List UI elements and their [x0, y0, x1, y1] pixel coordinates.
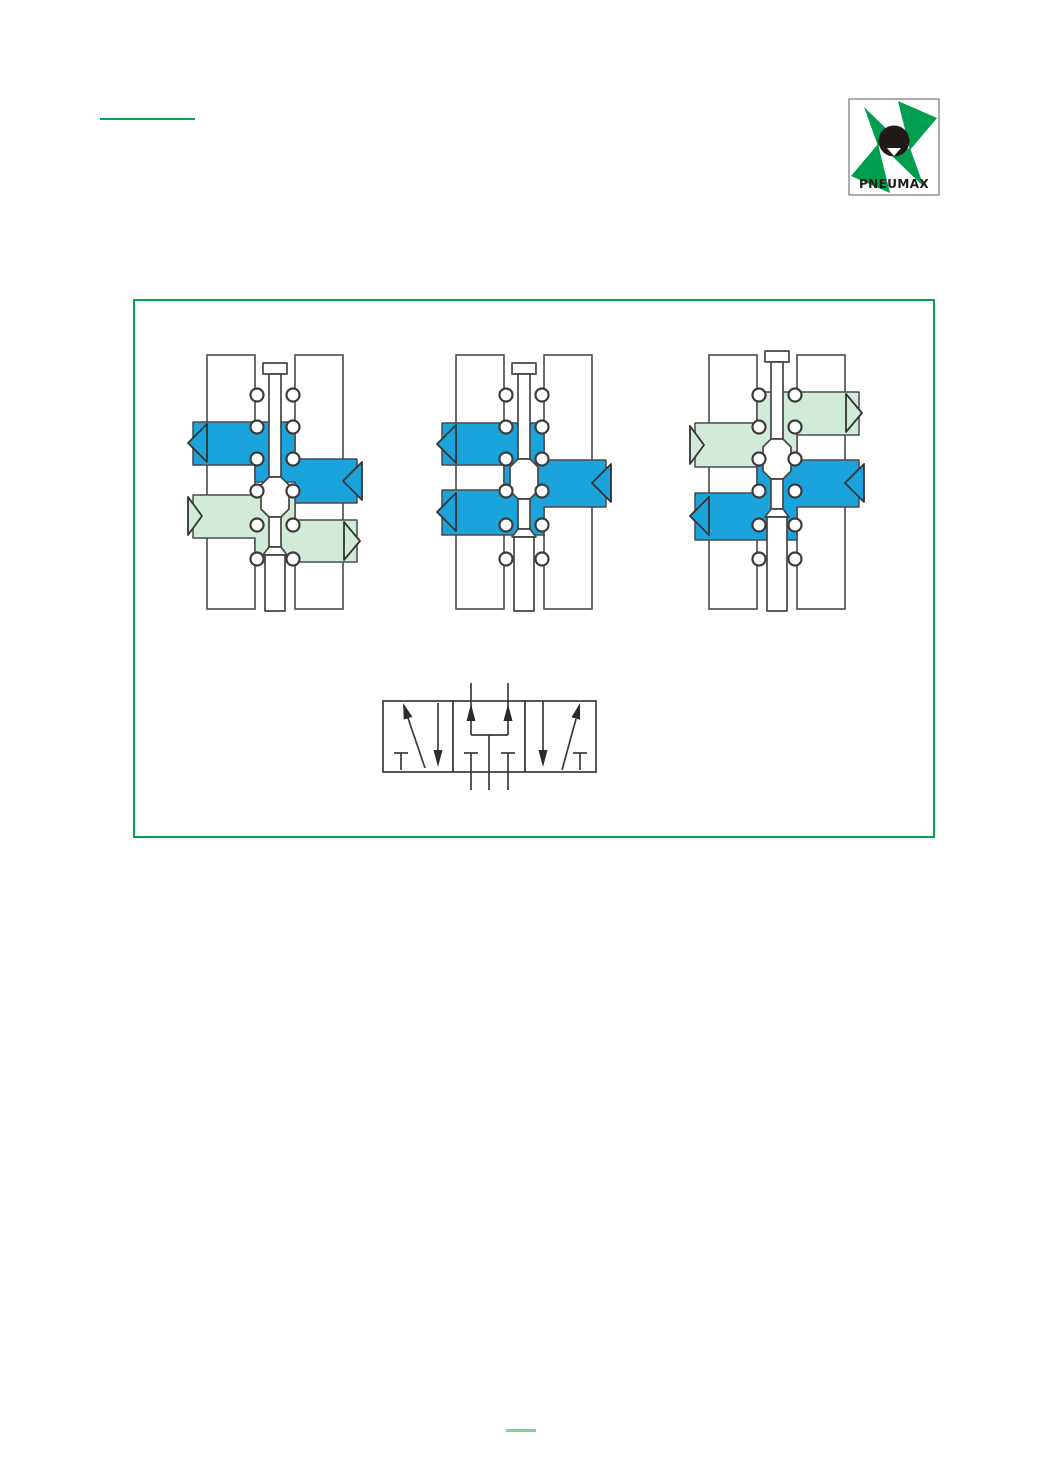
o-ring: [536, 519, 549, 532]
o-ring: [500, 553, 513, 566]
symbol-box-2: [525, 701, 596, 772]
valve-section-right: [687, 347, 867, 617]
o-ring: [251, 519, 264, 532]
logo-pinwheel-icon: PNEUMAX: [848, 98, 940, 197]
o-ring: [287, 485, 300, 498]
o-ring: [251, 453, 264, 466]
spool: [510, 363, 538, 611]
header-rule: [100, 118, 195, 120]
spool-land: [763, 439, 791, 479]
o-ring: [789, 553, 802, 566]
spool-cap: [765, 351, 789, 362]
valve-body-left: [456, 355, 504, 609]
valve-section-left: [185, 347, 365, 617]
spool-cap: [263, 363, 287, 374]
o-ring: [536, 453, 549, 466]
o-ring: [287, 421, 300, 434]
o-ring: [251, 553, 264, 566]
valve-symbol-svg: [368, 660, 608, 800]
o-ring: [753, 453, 766, 466]
o-ring: [251, 485, 264, 498]
o-ring: [789, 453, 802, 466]
spool-land: [510, 459, 538, 499]
o-ring: [753, 553, 766, 566]
spool-stem-upper: [269, 374, 281, 477]
spool-stem-lower: [771, 479, 783, 509]
pneumax-logo: PNEUMAX: [848, 98, 940, 197]
valve-position-left-svg: [185, 347, 365, 617]
o-ring: [789, 421, 802, 434]
o-ring: [287, 453, 300, 466]
o-ring: [500, 485, 513, 498]
o-ring: [753, 421, 766, 434]
spool-stem-upper: [771, 362, 783, 439]
o-ring: [287, 519, 300, 532]
o-ring: [789, 485, 802, 498]
o-ring: [287, 389, 300, 402]
o-ring: [500, 519, 513, 532]
o-ring: [536, 421, 549, 434]
o-ring: [789, 389, 802, 402]
spool-cap: [512, 363, 536, 374]
o-ring: [536, 389, 549, 402]
catalog-page: PNEUMAX: [0, 0, 1041, 1471]
footer-rule: [506, 1429, 536, 1432]
o-ring: [500, 389, 513, 402]
spool-stem-upper: [518, 374, 530, 459]
spool-stem-bottom: [767, 517, 787, 611]
o-ring: [251, 421, 264, 434]
valve-body-left: [207, 355, 255, 609]
spool: [261, 363, 289, 611]
o-ring: [500, 453, 513, 466]
spool-stem-bottom: [265, 555, 285, 611]
o-ring: [753, 519, 766, 532]
diagram-panel: [133, 299, 935, 838]
spool-stem-lower: [518, 499, 530, 529]
o-ring: [753, 485, 766, 498]
spool-stem-lower: [269, 517, 281, 547]
o-ring: [287, 553, 300, 566]
valve-iso-symbol: [368, 660, 608, 800]
symbol-box-0: [383, 701, 453, 772]
o-ring: [251, 389, 264, 402]
valve-position-center-svg: [434, 347, 614, 617]
valve-body-left: [709, 355, 757, 609]
o-ring: [536, 553, 549, 566]
logo-text: PNEUMAX: [859, 177, 929, 191]
o-ring: [753, 389, 766, 402]
o-ring: [536, 485, 549, 498]
valve-section-center: [434, 347, 614, 617]
o-ring: [789, 519, 802, 532]
o-ring: [500, 421, 513, 434]
spool-stem-bottom: [514, 537, 534, 611]
valve-position-right-svg: [687, 347, 867, 617]
spool-land: [261, 477, 289, 517]
